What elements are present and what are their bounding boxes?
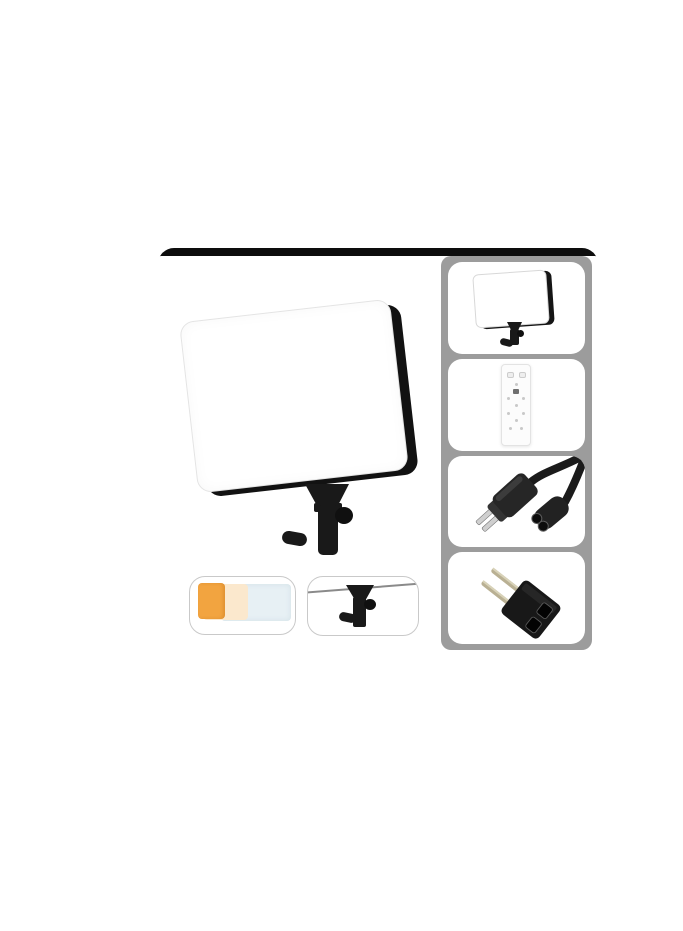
page-canvas xyxy=(0,0,683,931)
mount-foot-pin xyxy=(281,530,308,547)
product-photo-background xyxy=(158,256,598,652)
filter-sheet-orange xyxy=(198,583,225,619)
us-plug xyxy=(471,470,540,536)
thumbnail-plug-adapter xyxy=(448,552,585,644)
led-panel-light-main-view xyxy=(186,308,412,490)
thumbnail-panel-light xyxy=(448,262,585,354)
thumbnail-mount-bracket xyxy=(307,576,419,636)
power-cable-illustration xyxy=(448,456,585,547)
thumb-panel-face xyxy=(472,269,550,328)
mount-knob xyxy=(335,507,353,524)
product-photo-frame xyxy=(158,248,598,652)
mini-mount-knob xyxy=(364,599,376,610)
adapter-body xyxy=(474,559,562,641)
plug-adapter-illustration xyxy=(448,552,585,643)
thumb-mount-knob xyxy=(517,330,524,337)
thumbnail-remote-control xyxy=(448,359,585,451)
thumbnail-color-filters xyxy=(189,576,296,635)
panel-light-face xyxy=(179,299,409,494)
remote-control-body xyxy=(501,364,531,446)
thumbnail-power-cable xyxy=(448,456,585,548)
accessory-thumbnail-strip xyxy=(441,256,592,650)
